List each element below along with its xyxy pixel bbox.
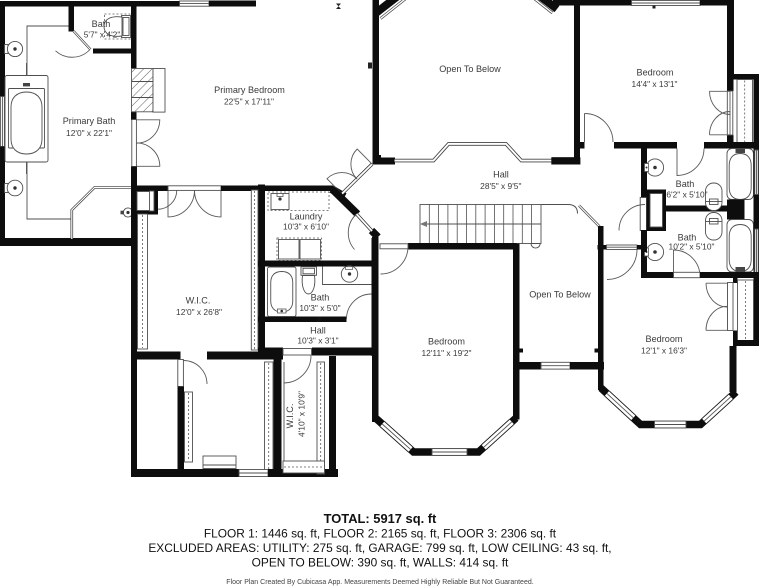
svg-text:Hall: Hall: [493, 170, 509, 180]
svg-text:TOTAL: 5917 sq. ft: TOTAL: 5917 sq. ft: [324, 511, 437, 526]
svg-text:10'2" x 5'10": 10'2" x 5'10": [669, 242, 715, 252]
svg-text:Open To Below: Open To Below: [529, 290, 591, 300]
svg-text:EXCLUDED AREAS: UTILITY: 275 s: EXCLUDED AREAS: UTILITY: 275 sq. ft, GAR…: [148, 541, 611, 555]
svg-text:4'10" x 10'9": 4'10" x 10'9": [297, 391, 307, 437]
svg-text:W.I.C.: W.I.C.: [186, 296, 211, 306]
svg-text:10'3" x 6'10": 10'3" x 6'10": [283, 222, 329, 232]
svg-text:12'1" x 16'3": 12'1" x 16'3": [641, 346, 687, 356]
svg-text:22'5" x 17'11": 22'5" x 17'11": [224, 97, 274, 107]
svg-text:Open To Below: Open To Below: [439, 64, 501, 74]
svg-text:6'2" x 5'10": 6'2" x 5'10": [666, 190, 707, 200]
svg-text:28'5" x 9'5": 28'5" x 9'5": [480, 181, 521, 191]
svg-text:Laundry: Laundry: [290, 212, 323, 222]
svg-text:Bath: Bath: [92, 19, 111, 29]
svg-text:14'4" x 13'1": 14'4" x 13'1": [632, 79, 678, 89]
svg-text:Bath: Bath: [311, 293, 330, 303]
svg-text:Bedroom: Bedroom: [646, 334, 683, 344]
svg-text:10'3" x 5'0": 10'3" x 5'0": [299, 303, 340, 313]
svg-text:5'7" x 4'2": 5'7" x 4'2": [84, 30, 121, 40]
svg-text:FLOOR 1: 1446 sq. ft, FLOOR 2:: FLOOR 1: 1446 sq. ft, FLOOR 2: 2165 sq. …: [204, 527, 557, 541]
svg-text:Primary Bedroom: Primary Bedroom: [214, 85, 285, 95]
svg-text:Hall: Hall: [310, 326, 326, 336]
svg-text:W.I.C.: W.I.C.: [285, 404, 295, 429]
svg-text:Primary Bath: Primary Bath: [63, 116, 116, 126]
svg-text:12'0" x 26'8": 12'0" x 26'8": [176, 307, 222, 317]
svg-text:OPEN TO BELOW: 390 sq. ft, WAL: OPEN TO BELOW: 390 sq. ft, WALLS: 414 sq…: [252, 556, 509, 570]
svg-text:Bedroom: Bedroom: [637, 68, 674, 78]
svg-text:Bedroom: Bedroom: [428, 337, 465, 347]
svg-text:10'3" x 3'1": 10'3" x 3'1": [297, 336, 338, 346]
svg-text:12'0" x 22'1": 12'0" x 22'1": [66, 128, 112, 138]
svg-text:12'11" x 19'2": 12'11" x 19'2": [422, 348, 472, 358]
svg-text:Floor Plan Created By Cubicasa: Floor Plan Created By Cubicasa App. Meas…: [226, 579, 533, 586]
svg-text:Bath: Bath: [676, 179, 695, 189]
